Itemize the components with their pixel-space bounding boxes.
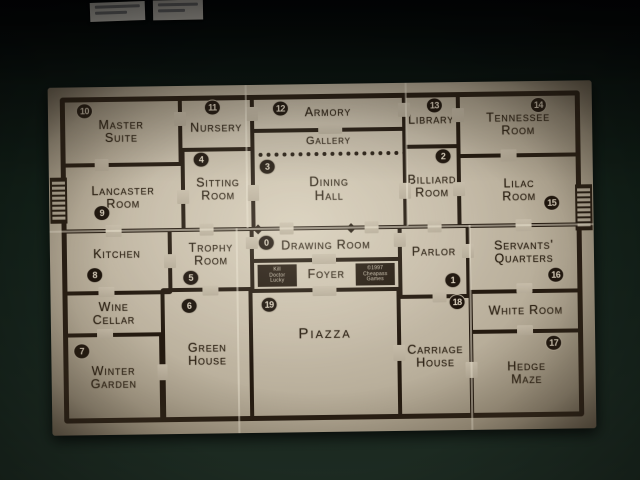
room-tennessee-room: Tennessee Room [456, 90, 581, 158]
room-label: Lilac Room [494, 177, 544, 204]
door-gap [501, 149, 517, 161]
door-gap [394, 233, 406, 247]
room-label: Armory [305, 106, 352, 120]
foyer-label-area: Foyer [300, 268, 352, 282]
room-label: Wine Cellar [86, 300, 142, 327]
room-label: Parlor [412, 246, 456, 260]
box-card-left [90, 1, 146, 22]
door-gap [312, 254, 336, 264]
door-gap [246, 107, 258, 121]
badge-dining-hall: 3 [259, 159, 276, 175]
room-lilac-room: Lilac Room [457, 152, 582, 228]
room-label: Nursery [190, 122, 242, 136]
card-marking [95, 11, 127, 15]
room-parlor: Parlor [398, 224, 471, 299]
title-line: Lucky [270, 278, 284, 284]
door-gap [516, 283, 532, 293]
door-gap [164, 254, 176, 268]
door-gap [452, 108, 464, 122]
door-gap [177, 190, 189, 204]
door-gap [247, 185, 259, 201]
door-gap [312, 286, 336, 296]
game-board: Master Suite Nursery Armory Gallery Libr… [48, 80, 597, 436]
room-label: Gallery [306, 136, 351, 148]
foyer-title-block: Kill Doctor Lucky [258, 264, 297, 287]
room-label: Sitting Room [189, 176, 247, 203]
box-card-right [153, 0, 203, 20]
badge-lilac-room: 15 [543, 195, 560, 211]
room-label: Dining Hall [298, 174, 360, 203]
room-hedge-maze: Hedge Maze [469, 328, 584, 418]
badge-hedge-maze: 17 [545, 335, 562, 351]
room-label: Piazza [298, 326, 351, 342]
door-gap [97, 329, 113, 339]
door-gap [318, 124, 342, 134]
room-label: Library [408, 114, 454, 128]
door-gap [393, 345, 405, 361]
badge-armory: 12 [272, 100, 289, 116]
foyer-credit-block: ©1997 Cheapass Games [356, 263, 395, 286]
room-label: Tennessee Room [475, 111, 561, 138]
room-kitchen: Kitchen [62, 228, 173, 296]
room-label: Trophy Room [182, 241, 240, 268]
room-label: Drawing Room [281, 239, 370, 253]
door-gap [157, 364, 167, 380]
door-gap [432, 290, 446, 302]
door-gap [246, 237, 258, 249]
room-trophy-room: Trophy Room [168, 227, 255, 292]
room-green-house: Green House [160, 287, 254, 422]
room-label: Lancaster Room [75, 184, 171, 212]
room-label: Kitchen [93, 248, 141, 262]
card-marking [158, 3, 198, 7]
door-gap [202, 285, 218, 295]
room-label: Foyer [308, 268, 345, 282]
credit-line: Games [367, 277, 384, 283]
room-label: Hedge Maze [498, 360, 554, 387]
door-gap [174, 112, 186, 126]
door-gap [95, 159, 109, 171]
card-marking [158, 9, 185, 12]
stairs-icon [50, 178, 68, 224]
room-label: Master Suite [85, 118, 157, 145]
card-marking [95, 4, 140, 9]
room-label: Winter Garden [81, 364, 145, 391]
room-wine-cellar: Wine Cellar [62, 290, 165, 337]
door-gap [517, 325, 533, 335]
door-gap [98, 287, 114, 297]
room-label: Billiard Room [407, 173, 457, 200]
room-label: White Room [489, 304, 563, 318]
room-label: Servants' Quarters [481, 238, 567, 265]
room-carriage-house: Carriage House [397, 294, 475, 419]
room-label: Carriage House [401, 343, 469, 370]
door-gap [453, 182, 465, 196]
room-label: Green House [179, 341, 235, 368]
badge-drawing-room: 0 [258, 235, 275, 251]
room-lancaster-room: Lancaster Room [61, 162, 186, 234]
